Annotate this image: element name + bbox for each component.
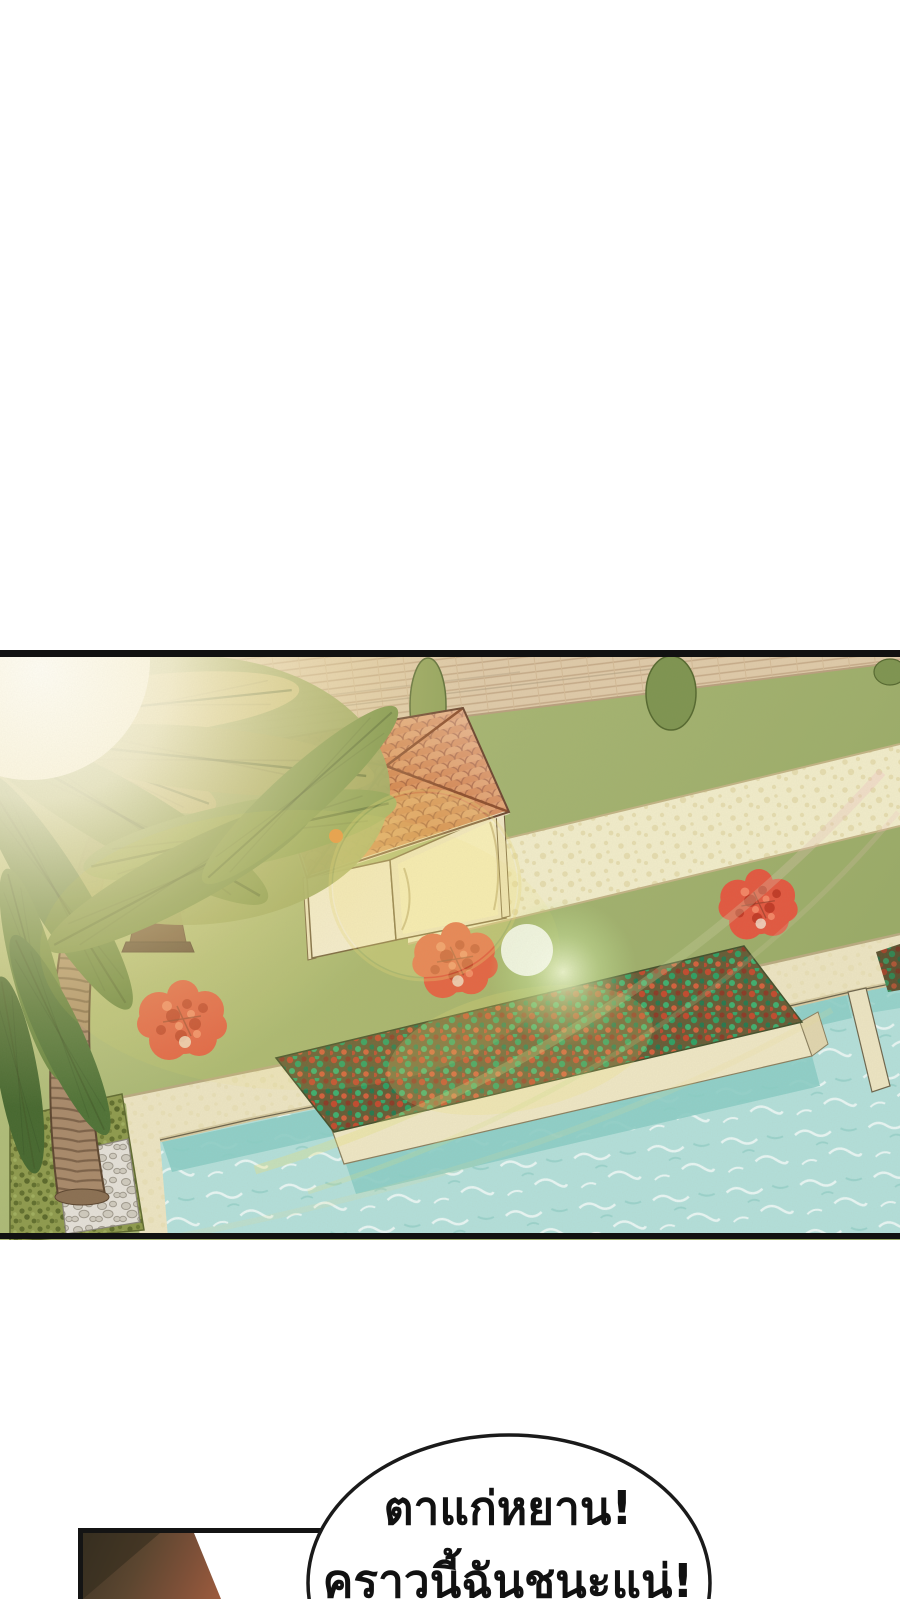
comic-page-canvas: ตาแก่หยาน! คราวนี้ฉันชนะแน่!	[0, 0, 900, 1599]
foreground-outline-left	[78, 1528, 83, 1599]
speech-bubble-text-line-1: ตาแก่หยาน!	[384, 1481, 633, 1535]
speech-bubble-text-line-2: คราวนี้ฉันชนะแน่!	[323, 1547, 694, 1599]
webtoon-page: ตาแก่หยาน! คราวนี้ฉันชนะแน่!	[0, 0, 900, 1599]
paper-grain	[0, 650, 900, 1240]
panel-bottom-border	[0, 1233, 900, 1239]
panel-top-border	[0, 650, 900, 657]
foreground-outline-top	[78, 1528, 324, 1533]
